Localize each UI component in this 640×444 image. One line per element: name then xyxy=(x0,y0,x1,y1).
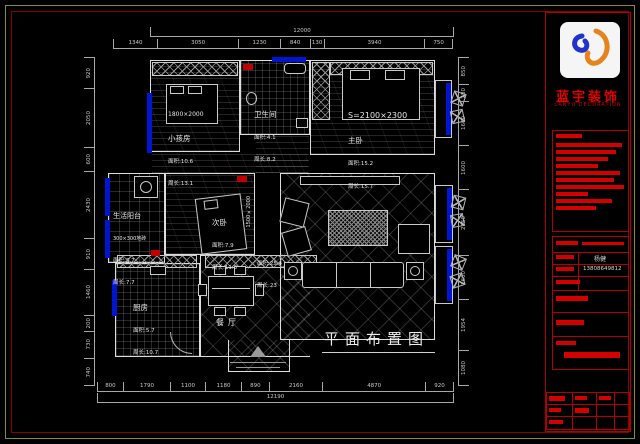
window-kids-left xyxy=(147,93,152,153)
dim-top-5: 3940 xyxy=(324,39,424,49)
lamp-left xyxy=(288,266,298,276)
rev-cell-1 xyxy=(549,396,565,401)
label-balcony: 生活阳台 300×300地砖 面积:3.7 周长:7.7 xyxy=(113,197,146,302)
rev-div-1 xyxy=(572,392,573,430)
info-row6-value-bar xyxy=(564,352,620,358)
bathtub xyxy=(284,63,306,74)
red-tag-bathroom xyxy=(243,64,253,70)
notes-line-1 xyxy=(556,143,622,147)
washing-machine-drum xyxy=(140,181,152,193)
dining-table-line xyxy=(212,288,250,289)
dim-left-2: 600 xyxy=(84,147,95,171)
info-row1-label-bar xyxy=(556,255,574,259)
dim-top-6: 750 xyxy=(424,39,452,49)
company-name-en: LANYU DECORATION xyxy=(546,102,630,108)
dim-left-0: 920 xyxy=(84,57,95,88)
label-dining: 餐厅 xyxy=(216,318,240,329)
notes-line-2 xyxy=(556,150,616,154)
master-name: 主卧 xyxy=(348,136,407,146)
kitchen-perimeter: 周长:10.7 xyxy=(133,350,158,357)
label-second-bedroom: 次卧 面积:7.9 周长:11.3 xyxy=(212,203,237,287)
dim-right-6: 1954 xyxy=(458,299,469,350)
window-balcony-2 xyxy=(105,220,110,258)
info-row4-label-bar xyxy=(556,296,588,301)
kids-room-name: 小孩房 xyxy=(168,134,204,144)
armchair xyxy=(398,224,430,254)
info-line-3 xyxy=(552,276,629,277)
balcony-name: 生活阳台 xyxy=(113,212,146,221)
dim-top-total-value: 12000 xyxy=(150,27,453,37)
dim-bottom-1: 1790 xyxy=(123,382,170,392)
dim-bottom-4: 890 xyxy=(241,382,269,392)
bath-name: 卫生间 xyxy=(254,110,277,120)
notes-line-10 xyxy=(556,206,596,210)
wardrobe-master-side xyxy=(312,62,330,120)
info-line-1 xyxy=(552,252,629,253)
sofa xyxy=(302,262,404,288)
second-bed-size: 1500×2000 xyxy=(246,196,253,227)
coffee-table xyxy=(328,210,388,246)
rev-cell-3 xyxy=(599,396,611,400)
logo-swirl-icon xyxy=(560,22,620,78)
kitchen-name: 厨房 xyxy=(133,303,158,313)
rev-cell-4 xyxy=(549,408,561,412)
kids-perimeter: 周长:13.1 xyxy=(168,181,204,188)
dim-bottom-0: 800 xyxy=(97,382,123,392)
chair-dining-5 xyxy=(198,284,207,296)
dim-right-1: 280 xyxy=(458,84,469,101)
lamp-right xyxy=(410,266,420,276)
living-perimeter: 周长:23 xyxy=(257,283,282,290)
dim-right-0: 850 xyxy=(458,57,469,84)
contact-name-value: 杨健 xyxy=(594,254,606,263)
second-name: 次卧 xyxy=(212,218,237,228)
sofa-divider-2 xyxy=(370,263,371,287)
pillow-master-2 xyxy=(385,70,405,80)
notes-line-8 xyxy=(556,192,588,196)
notes-line-6 xyxy=(556,178,614,182)
dim-bottom-5: 2160 xyxy=(269,382,323,392)
dimension-top-total: 12000 xyxy=(150,27,454,37)
window-balcony-1 xyxy=(105,178,110,216)
dimension-left-segments: 920 2050 600 2430 910 1460 200 730 740 xyxy=(84,57,95,386)
rev-line-2 xyxy=(546,416,630,417)
drawing-title: 平面布置图 xyxy=(322,328,435,353)
label-kids-room: 1800×2000 小孩房 面积:10.6 周长:13.1 xyxy=(168,96,204,203)
cad-drawing-sheet: 1800×2000 小孩房 面积:10.6 周长:13.1 卫生间 面积:4.1… xyxy=(0,0,640,444)
window-bathroom-top xyxy=(272,57,306,62)
master-perimeter: 周长:15.7 xyxy=(348,184,407,191)
rev-cell-5 xyxy=(575,408,589,413)
dim-left-3: 2430 xyxy=(84,171,95,238)
dim-left-8: 740 xyxy=(84,358,95,385)
label-master-bedroom: S=2100×2300 主卧 面积:15.2 周长:15.7 xyxy=(348,96,407,206)
dimension-bottom-total: 12190 xyxy=(97,393,454,403)
dimension-bottom-segments: 800 1790 1100 1180 890 2160 4870 920 xyxy=(97,382,454,392)
rev-cell-2 xyxy=(575,396,587,400)
dim-right-7: 1080 xyxy=(458,350,469,385)
info-line-4 xyxy=(552,290,629,291)
sink-kitchen xyxy=(150,266,166,275)
red-tag-second-bedroom xyxy=(237,176,247,182)
info-divider-vertical xyxy=(578,252,579,290)
sofa-divider-1 xyxy=(336,263,337,287)
info-line-6 xyxy=(552,336,629,337)
notes-header-bar xyxy=(556,134,582,138)
pillow-kids-1 xyxy=(170,86,184,94)
chair-dining-4 xyxy=(234,307,246,316)
dim-top-0: 1340 xyxy=(113,39,157,49)
info-row3-label-bar xyxy=(556,280,580,284)
dim-left-1: 2050 xyxy=(84,88,95,147)
second-perimeter: 周长:11.3 xyxy=(212,265,237,272)
info-row0-label-bar xyxy=(556,241,578,245)
notes-line-7 xyxy=(556,185,624,189)
window-master-right xyxy=(446,83,451,135)
dim-right-2: 1600 xyxy=(458,101,469,145)
rev-line-1 xyxy=(546,404,630,405)
info-line-5 xyxy=(552,312,629,313)
rev-cell-6 xyxy=(549,420,563,424)
kids-area: 面积:10.6 xyxy=(168,159,204,166)
dim-top-4: 130 xyxy=(310,39,324,49)
notes-line-3 xyxy=(556,157,608,161)
balcony-area: 面积:3.7 xyxy=(113,258,146,265)
dim-top-2: 1230 xyxy=(238,39,280,49)
red-tag-balcony xyxy=(151,250,160,256)
info-row5-label-bar xyxy=(556,320,584,325)
bath-perimeter: 周长:8.2 xyxy=(254,157,277,164)
info-row6-label-bar xyxy=(556,341,576,345)
pillow-master-1 xyxy=(350,70,370,80)
contact-phone-value: 13808649812 xyxy=(583,266,622,272)
dimension-right-segments: 850 280 1600 1600 2750 1600 1954 1080 xyxy=(458,57,469,386)
notes-line-5 xyxy=(556,171,620,175)
dim-right-4: 2750 xyxy=(458,189,469,254)
pillow-kids-2 xyxy=(188,86,202,94)
label-living-area: 面积:25.4 周长:23 xyxy=(257,246,282,305)
dim-top-3: 840 xyxy=(280,39,310,49)
bath-area: 面积:4.1 xyxy=(254,135,277,142)
dim-bottom-2: 1100 xyxy=(170,382,205,392)
label-bathroom: 卫生间 面积:4.1 周长:8.2 xyxy=(254,95,277,179)
wardrobe-kids xyxy=(152,62,238,76)
entry-step-2 xyxy=(236,367,280,368)
dim-bottom-3: 1180 xyxy=(205,382,241,392)
master-area: 面积:15.2 xyxy=(348,161,407,168)
dim-left-6: 200 xyxy=(84,315,95,331)
balcony-perimeter: 周长:7.7 xyxy=(113,280,146,287)
entry-arrow-icon xyxy=(250,346,266,357)
dim-right-5: 1600 xyxy=(458,255,469,299)
entry-step-1 xyxy=(230,362,286,363)
rev-div-3 xyxy=(614,392,615,430)
notes-line-4 xyxy=(556,164,598,168)
info-line-2 xyxy=(552,264,629,265)
rev-div-2 xyxy=(596,392,597,430)
kitchen-area: 面积:5.7 xyxy=(133,328,158,335)
balcony-tile: 300×300地砖 xyxy=(113,236,146,243)
kids-bed-size: 1800×2000 xyxy=(168,111,204,119)
second-area: 面积:7.9 xyxy=(212,243,237,250)
dim-left-4: 910 xyxy=(84,238,95,269)
label-kitchen: 厨房 面积:5.7 周长:10.7 xyxy=(133,288,158,372)
master-bed-size: S=2100×2300 xyxy=(348,111,407,122)
dim-bottom-7: 920 xyxy=(425,382,453,392)
dim-left-7: 730 xyxy=(84,331,95,358)
dim-right-3: 1600 xyxy=(458,145,469,189)
info-row2-label-bar xyxy=(556,267,574,271)
notes-line-9 xyxy=(556,199,612,203)
sink-bathroom xyxy=(296,118,308,128)
living-area: 面积:25.4 xyxy=(257,261,282,268)
dimension-top-segments: 1340 3050 1230 840 130 3940 750 xyxy=(113,39,453,49)
dim-top-1: 3050 xyxy=(157,39,238,49)
company-logo xyxy=(560,22,620,78)
chair-dining-3 xyxy=(214,307,226,316)
dim-left-5: 1460 xyxy=(84,269,95,315)
dim-bottom-total-value: 12190 xyxy=(97,393,453,403)
info-row0-value-bar xyxy=(582,242,624,245)
dim-bottom-6: 4870 xyxy=(322,382,425,392)
